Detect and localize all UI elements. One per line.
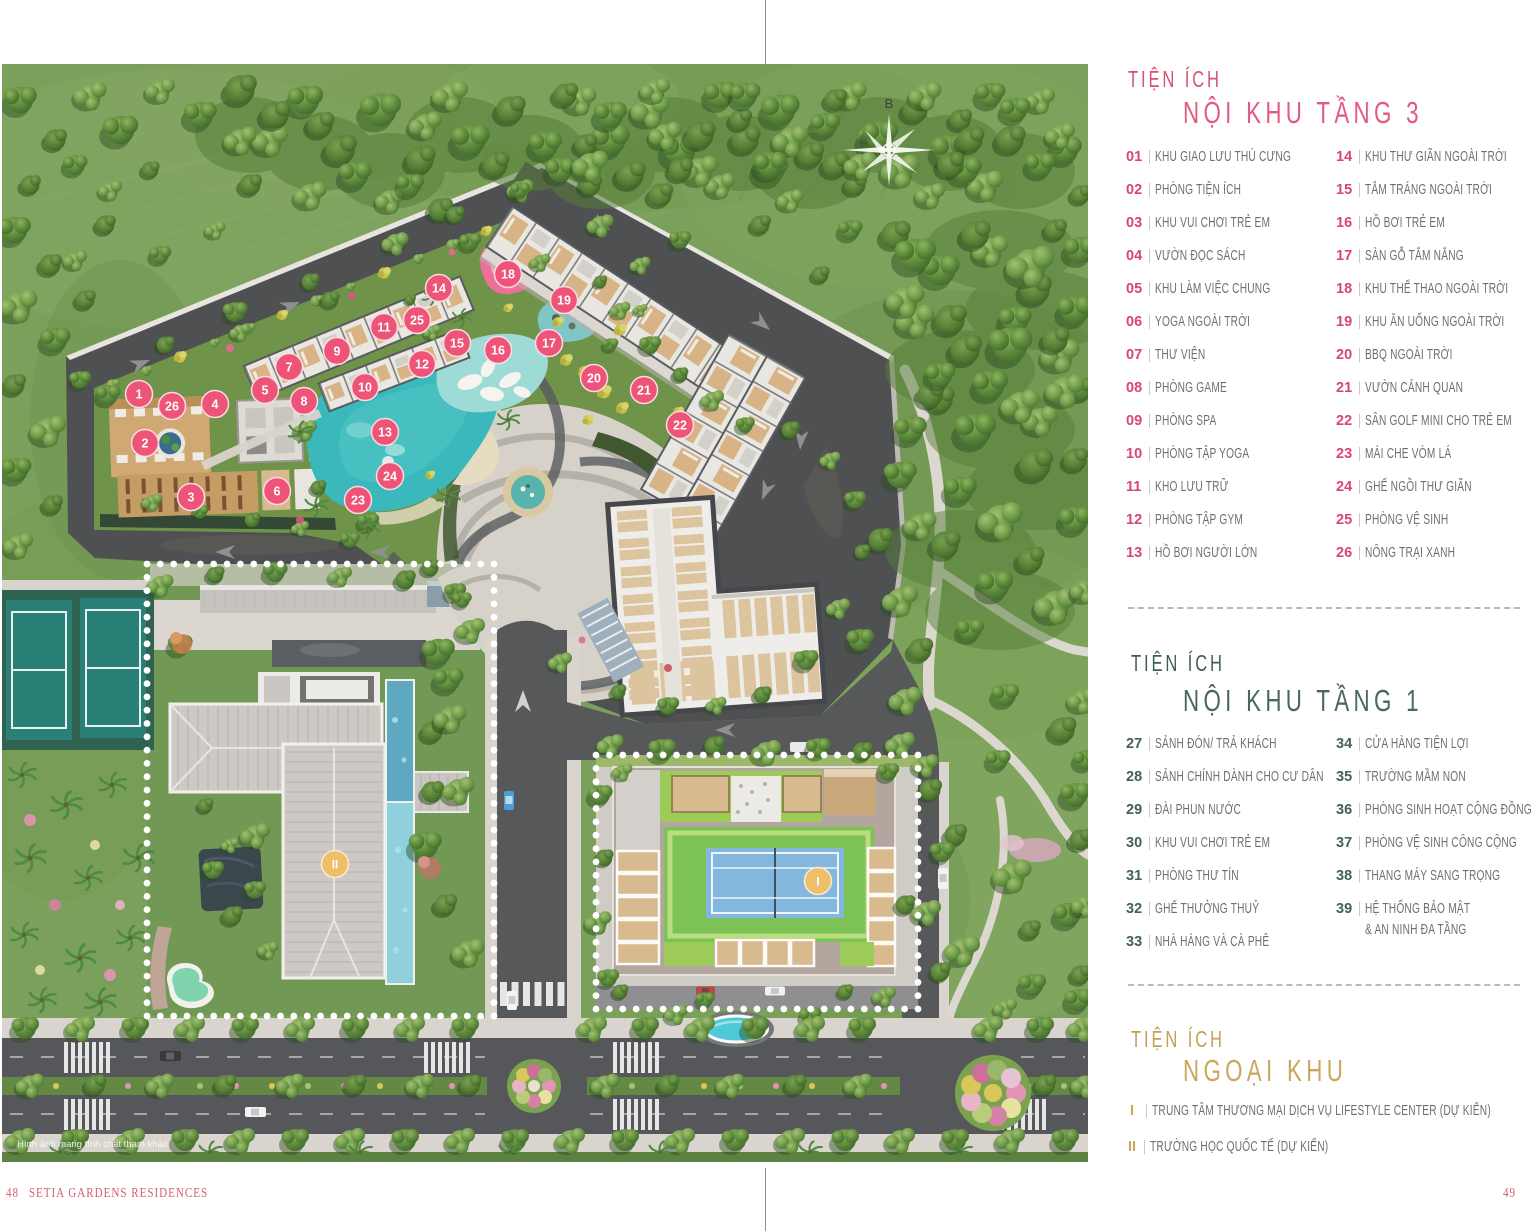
svg-text:24: 24 [383,470,397,484]
svg-text:23: 23 [351,494,365,508]
svg-text:26: 26 [165,400,179,414]
svg-text:13: 13 [378,426,392,440]
svg-text:8: 8 [301,395,308,409]
svg-text:18: 18 [501,268,515,282]
svg-text:2: 2 [142,437,149,451]
svg-text:22: 22 [673,419,687,433]
svg-text:12: 12 [415,358,429,372]
svg-text:I: I [816,877,819,889]
svg-text:B: B [885,96,894,111]
svg-text:Hình ảnh mang tính chất tham k: Hình ảnh mang tính chất tham khảo [17,1139,168,1150]
svg-text:7: 7 [286,361,293,375]
svg-text:5: 5 [262,384,269,398]
svg-text:1: 1 [136,388,143,402]
svg-text:15: 15 [450,337,464,351]
svg-text:21: 21 [637,384,651,398]
svg-text:3: 3 [188,491,195,505]
svg-text:20: 20 [587,372,601,386]
svg-text:16: 16 [491,344,505,358]
svg-text:11: 11 [377,321,390,335]
svg-text:19: 19 [557,294,571,308]
svg-text:17: 17 [542,337,556,351]
svg-text:10: 10 [358,381,372,395]
svg-text:6: 6 [274,485,281,499]
svg-text:9: 9 [334,345,341,359]
svg-text:4: 4 [212,398,219,412]
svg-text:II: II [332,860,338,872]
svg-text:25: 25 [410,314,424,328]
svg-text:14: 14 [432,282,446,296]
